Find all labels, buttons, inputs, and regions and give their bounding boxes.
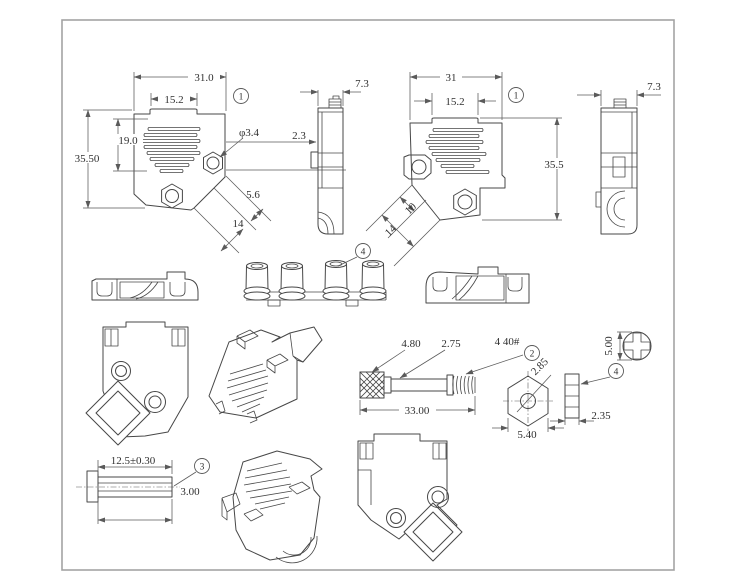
vent-slots (426, 128, 489, 173)
hood-isometric-view-lower (222, 451, 322, 563)
dim-text-14-right: 14 (383, 222, 400, 239)
vent-slots (244, 463, 292, 509)
post-top-view (623, 332, 651, 360)
latch-cup (170, 282, 185, 296)
clip-tab (267, 354, 288, 373)
dim-text-15-2: 15.2 (164, 94, 183, 106)
dim-top-slot-width: 15.2 (414, 93, 496, 115)
hex-nut-boss-upper (204, 152, 223, 174)
dim-text-12-5: 12.5±0.30 (111, 455, 156, 467)
neck (384, 377, 391, 393)
outline (426, 267, 529, 303)
hood-side-view-left: 7.3 (300, 78, 369, 234)
lock-post-drawing: 5.00 2.35 4 (550, 332, 651, 425)
hex-nut-drawing: 2.85 5.40 (492, 355, 564, 441)
hood-bottom-view-a (92, 272, 198, 300)
dim-dia: 3.00 (180, 486, 200, 498)
cross-recess (624, 333, 650, 359)
screw-boss (145, 392, 166, 413)
dim-overall-length: 33.00 (360, 396, 475, 417)
vent-slots (141, 127, 200, 172)
threads (453, 376, 475, 394)
side-flange (222, 493, 240, 520)
screw-boss (112, 362, 131, 381)
callout-part1-right: 1 (509, 88, 524, 103)
dim-lower (98, 499, 172, 524)
lock-post (279, 263, 305, 301)
dim-text-35-50: 35.50 (75, 153, 100, 165)
dim-text-5-00: 5.00 (603, 336, 615, 356)
dim-text-14-left: 14 (233, 218, 245, 230)
dim-body-width: 2.35 (550, 410, 611, 425)
drawing-page: 31.0 15.2 19.0 35.50 φ3.4 (0, 0, 730, 584)
latch-cup (508, 277, 522, 291)
callout-number: 2 (530, 350, 535, 360)
outline (209, 327, 322, 418)
dim-text-31: 31 (446, 72, 457, 84)
callout-number: 1 (514, 92, 519, 102)
callout-part3: 3 (174, 459, 210, 487)
callout-number: 4 (614, 368, 619, 378)
callout-part1-left: 1 (234, 89, 249, 104)
hood-side-view-right: 7.3 (577, 81, 661, 234)
callout-part4-post: 4 (581, 364, 624, 385)
cable-opening (276, 536, 317, 563)
dim-cable-exit: 5.6 14 (194, 176, 271, 253)
hood-front-view-left: 31.0 15.2 19.0 35.50 φ3.4 (69, 71, 346, 253)
clip-tab (237, 330, 258, 349)
dim-text-7-3-left: 7.3 (355, 78, 369, 90)
dim-text-4-40: 4 40# (495, 336, 520, 348)
dim-text-31-0: 31.0 (194, 72, 214, 84)
dim-top-slot-width: 15.2 (151, 93, 197, 106)
thumbscrew-drawing: 4.80 2.75 4 40# 33.00 2 (348, 336, 540, 417)
lock-post (360, 261, 386, 301)
dim-text-19-0: 19.0 (118, 135, 138, 147)
latch-cup (433, 277, 447, 291)
dim-vent-height: 19.0 (113, 119, 148, 171)
side-flange (596, 192, 601, 207)
dim-text-10: 10 (403, 200, 420, 217)
dim-text-2-75: 2.75 (441, 338, 461, 350)
dim-length: 12.5±0.30 (98, 455, 172, 474)
dim-text-4-80: 4.80 (401, 338, 421, 350)
bottom-hook (607, 191, 625, 227)
outline (233, 451, 322, 560)
clip-tabs (244, 482, 310, 521)
callout-number: 4 (361, 248, 366, 258)
hood-outline (410, 118, 505, 220)
dim-text-5-40: 5.40 (517, 429, 537, 441)
dim-text-2-3: 2.3 (292, 130, 306, 142)
dim-text-15-2-right: 15.2 (445, 96, 464, 108)
hex-nut-boss-lower (162, 184, 183, 208)
screw-lock-strip: 4 (244, 244, 386, 307)
shaft (391, 379, 447, 391)
hood-inside-view-lower (358, 434, 462, 561)
dim-text-35-5: 35.5 (544, 159, 564, 171)
dim-cable-exit: 10 14 (366, 185, 440, 266)
hood-inside-view-left (86, 322, 188, 445)
leader-thread-spec: 4 40# (466, 336, 523, 374)
callout-number: 1 (239, 93, 244, 103)
dim-text-7-3-right: 7.3 (647, 81, 661, 93)
mount-feet (216, 401, 257, 423)
callout-number: 3 (200, 463, 205, 473)
dim-text-3-00: 3.00 (180, 486, 200, 498)
dim-text-hole-dia: φ3.4 (239, 127, 260, 139)
dim-overall-height: 35.5 (480, 118, 571, 220)
latch-cup (97, 282, 112, 296)
screw-hole-boss (404, 155, 431, 179)
dim-text-5-6: 5.6 (246, 189, 260, 201)
hex-nut-boss (454, 189, 477, 215)
dim-text-2-35: 2.35 (591, 410, 611, 422)
pin-head (87, 471, 98, 502)
hood-isometric-view-upper (209, 327, 322, 423)
hood-front-view-right: 31 15.2 35.5 10 14 1 (366, 71, 571, 266)
screw-lock-top (614, 99, 626, 108)
leader-bore-dia: 2.85 (517, 355, 551, 412)
technical-drawing-canvas: 31.0 15.2 19.0 35.50 φ3.4 (0, 0, 730, 584)
flange (447, 375, 453, 395)
lock-post (244, 263, 270, 301)
leader-head-dia: 4.80 (372, 338, 421, 372)
side-flange (311, 152, 318, 168)
screw-lock-top (329, 96, 341, 108)
screw-boss (387, 509, 406, 528)
hood-bottom-view-b (426, 267, 529, 303)
dim-text-33-00: 33.00 (405, 405, 430, 417)
lock-post (323, 261, 349, 301)
callout-part2: 2 (525, 346, 540, 361)
vent-slots (227, 364, 268, 412)
slotted-pin-drawing: 12.5±0.30 3.00 3 (76, 455, 210, 524)
